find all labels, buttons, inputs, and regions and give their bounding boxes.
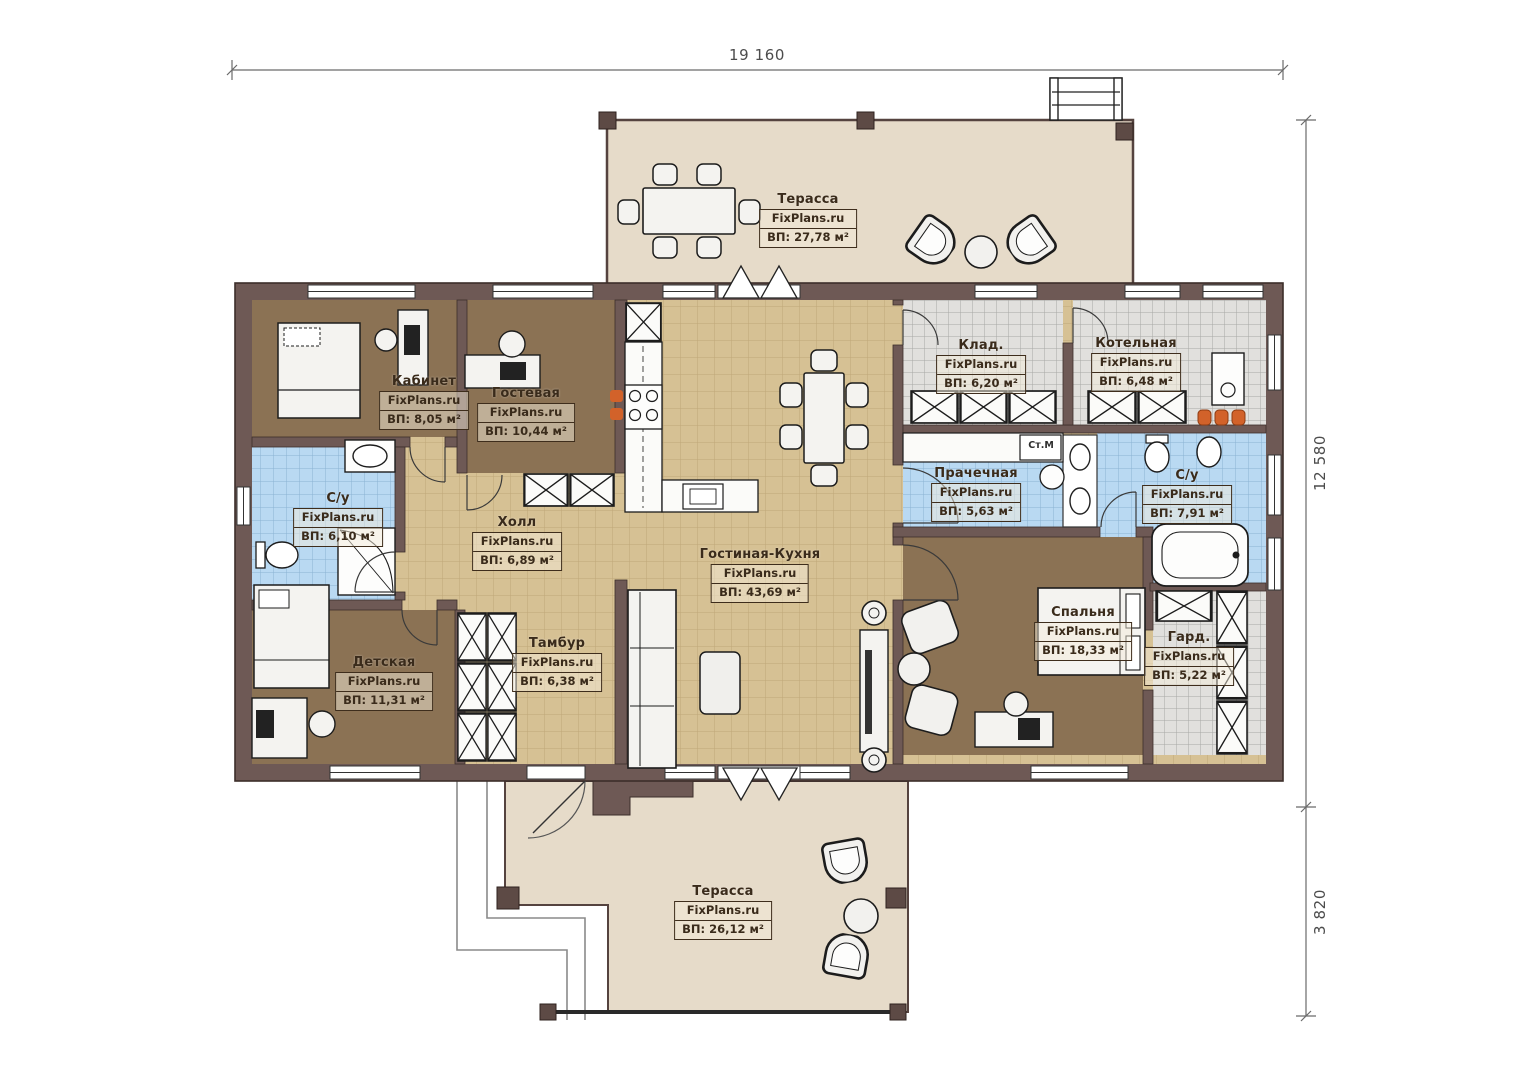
plant [862, 601, 886, 625]
terrace-chair [653, 237, 677, 258]
room-label-spalnya: Спальня FixPlans.ruВП: 18,33 м² [1034, 606, 1132, 661]
dining-chair [846, 425, 868, 449]
room-label-kabinet: Кабинет FixPlans.ruВП: 8,05 м² [379, 375, 469, 430]
sink [1197, 437, 1221, 467]
stove [625, 385, 662, 429]
washing-machine-label: Ст.М [1028, 440, 1054, 451]
terrace-post [540, 1004, 556, 1020]
room-label-klad: Клад. FixPlans.ruВП: 6,20 м² [936, 339, 1026, 394]
terrace-chair [739, 200, 760, 224]
tv-console [860, 630, 888, 752]
dining-table [804, 373, 844, 463]
terrace-post [599, 112, 616, 129]
side-table [898, 653, 930, 685]
dining-chair [811, 465, 837, 486]
desk-chair [309, 711, 335, 737]
plumbing-shaft [1063, 435, 1097, 527]
monitor [256, 710, 274, 738]
dimension-right-height: 12 580 [1311, 435, 1329, 491]
room-label-su-right: С/у FixPlans.ruВП: 7,91 м² [1142, 469, 1232, 524]
room-label-gostevaya: Гостевая FixPlans.ruВП: 10,44 м² [477, 387, 575, 442]
terrace-table [643, 188, 735, 234]
terrace-post [1116, 123, 1133, 140]
terrace-top-area [599, 78, 1133, 285]
plant [862, 748, 886, 772]
room-label-gard: Гард. FixPlans.ruВП: 5,22 м² [1144, 631, 1234, 686]
sink [353, 445, 387, 467]
wardrobe [1089, 391, 1136, 423]
monitor [404, 325, 420, 355]
wardrobe [570, 474, 613, 506]
monitor [1018, 718, 1040, 740]
terrace-chair [697, 237, 721, 258]
room-label-su-left: С/у FixPlans.ruВП: 6,10 м² [293, 492, 383, 547]
dining-chair [780, 383, 802, 407]
toilet [1145, 442, 1169, 472]
desk-chair [499, 331, 525, 357]
dimension-top-width: 19 160 [729, 46, 785, 64]
round-table [844, 899, 878, 933]
detskaya-furniture [252, 585, 335, 758]
room-label-tambur: Тамбур FixPlans.ruВП: 6,38 м² [512, 637, 602, 692]
dimension-right-terrace: 3 820 [1311, 889, 1329, 935]
wardrobe [1139, 391, 1186, 423]
room-label-detskaya: Детская FixPlans.ruВП: 11,31 м² [335, 656, 433, 711]
stove-flame-icon [610, 408, 623, 420]
shoe-icon [1198, 410, 1211, 425]
coffee-table [700, 652, 740, 714]
terrace-post [857, 112, 874, 129]
toilet-tank [256, 542, 265, 568]
terrace-post [890, 1004, 906, 1020]
dining-chair [846, 383, 868, 407]
wardrobe [524, 474, 567, 506]
room-label-living-kitchen: Гостиная-Кухня FixPlans.ruВП: 43,69 м² [700, 548, 821, 603]
desk-chair [1004, 692, 1028, 716]
room-label-terrace-top: Терасса FixPlans.ruВП: 27,78 м² [759, 193, 857, 248]
kitchen-sink [683, 484, 723, 509]
stove-flame-icon [610, 390, 623, 402]
kitchen-cabinet [626, 303, 661, 341]
terrace-post [497, 887, 519, 909]
sofa [628, 590, 676, 768]
room-label-kholl: Холл FixPlans.ruВП: 6,89 м² [472, 516, 562, 571]
shoe-icon [1215, 410, 1228, 425]
monitor [500, 362, 526, 380]
room-label-prachechnaya: Прачечная FixPlans.ruВП: 5,63 м² [931, 467, 1021, 522]
round-table [965, 236, 997, 268]
room-label-terrace-bottom: Терасса FixPlans.ruВП: 26,12 м² [674, 885, 772, 940]
terrace-chair [653, 164, 677, 185]
dining-chair [811, 350, 837, 371]
shoe-icon [1232, 410, 1245, 425]
washer-drum [1040, 465, 1064, 489]
terrace-chair [697, 164, 721, 185]
terrace-post [886, 888, 906, 908]
terrace-chair [618, 200, 639, 224]
tv [865, 650, 872, 734]
floor-plan: 19 160 12 580 3 820 Ст.М Терасса FixPlan… [0, 0, 1528, 1080]
terrace-stairs [1050, 78, 1122, 120]
room-label-kotelnaya: Котельная FixPlans.ruВП: 6,48 м² [1091, 337, 1181, 392]
desk-chair [375, 329, 397, 351]
desk [975, 712, 1053, 747]
dining-chair [780, 425, 802, 449]
klad-wardrobes [911, 391, 1055, 423]
bathtub [1152, 524, 1248, 586]
